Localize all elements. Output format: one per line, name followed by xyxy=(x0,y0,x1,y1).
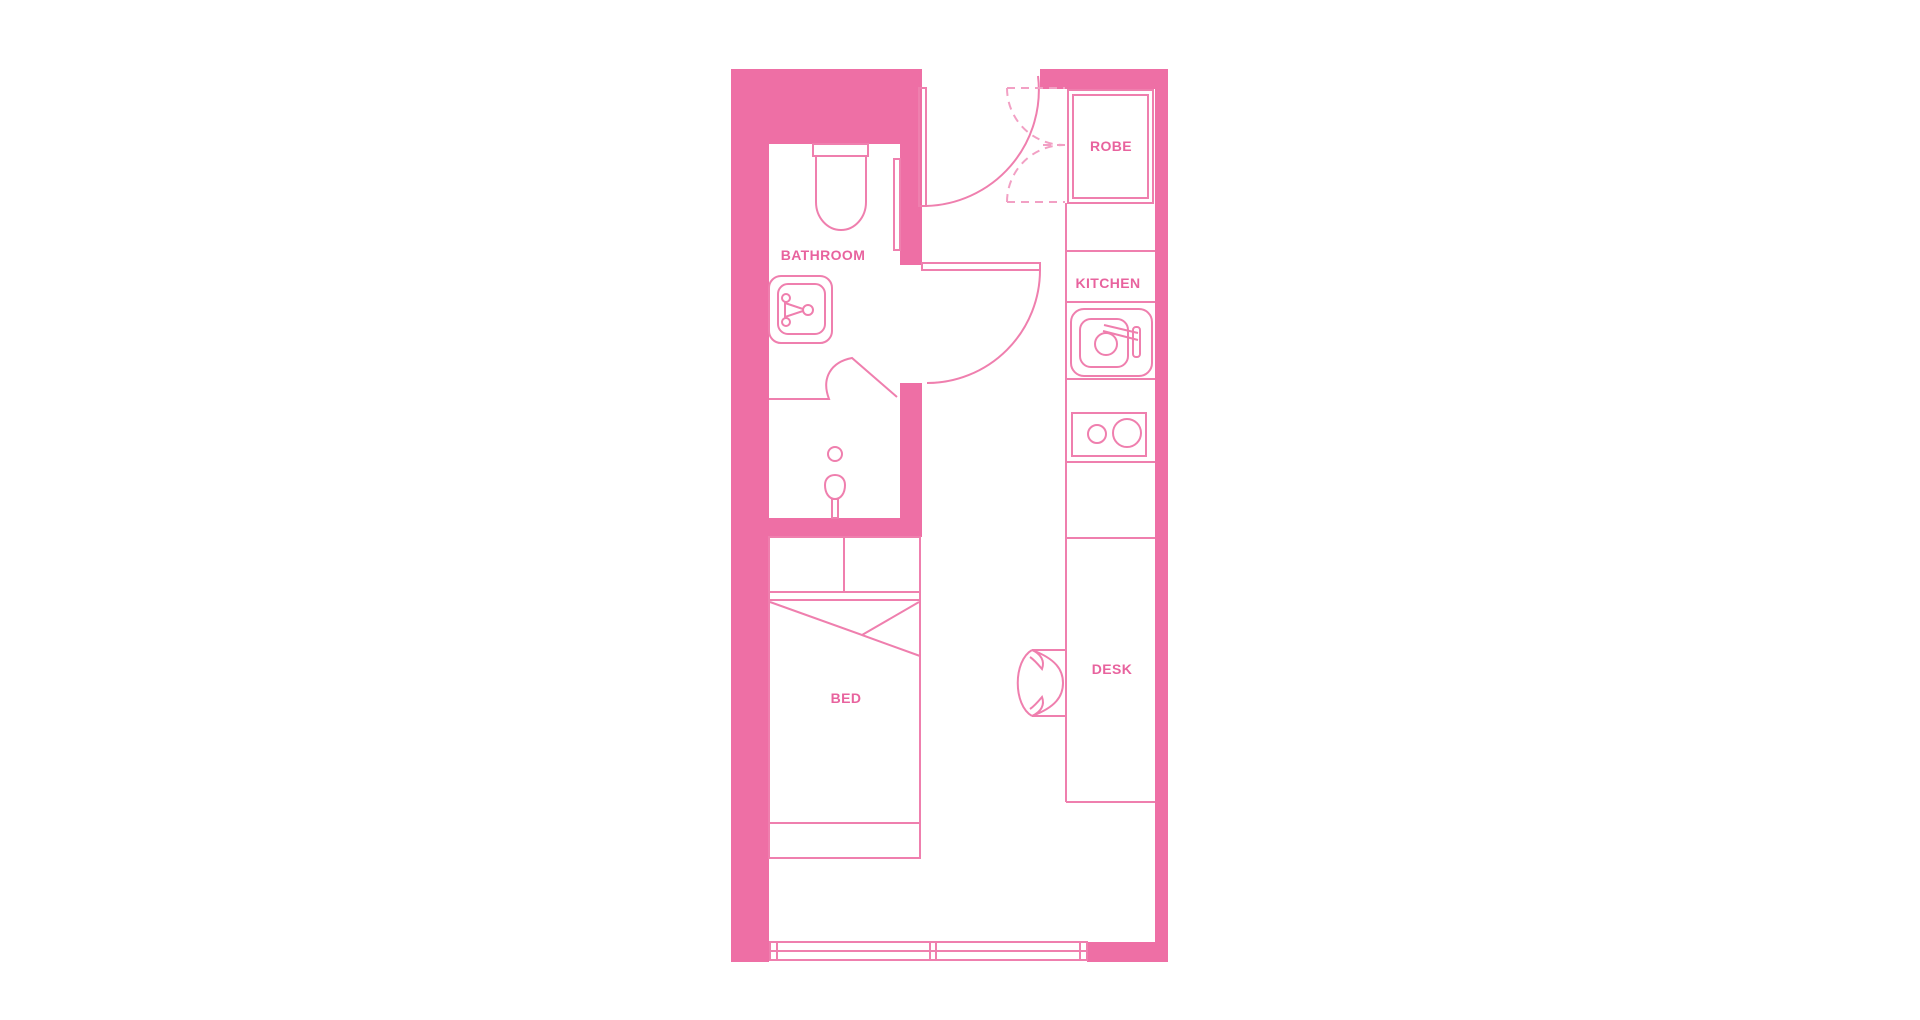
wall-bottom-right xyxy=(1087,942,1168,962)
shower-stem xyxy=(832,499,838,518)
shower-icon xyxy=(825,447,845,518)
robe-door-bottom-arc xyxy=(1007,145,1064,202)
sink-bowl xyxy=(1080,319,1128,367)
wall-top-left-block xyxy=(731,69,922,144)
window-icon xyxy=(770,942,1087,960)
bathroom-wall-panel xyxy=(894,159,900,250)
bathroom-door-swing-arc xyxy=(927,270,1040,383)
kitchen-sink-icon xyxy=(1071,309,1152,376)
basin-tap-tip xyxy=(803,305,813,315)
wall-bathroom-lower xyxy=(900,383,922,518)
room-label-desk: DESK xyxy=(1092,661,1133,677)
chair-connectors xyxy=(1032,650,1066,716)
bathroom-door-leaf xyxy=(922,263,1040,270)
wall-top-right xyxy=(1040,69,1168,89)
bathroom-door-icon xyxy=(922,263,1040,383)
bed-blanket-fold xyxy=(770,602,920,656)
shower-head xyxy=(828,447,842,461)
basin-icon xyxy=(769,276,832,343)
sink-drain xyxy=(1095,333,1117,355)
basin-tap-handle-bottom xyxy=(782,318,790,326)
toilet-bowl xyxy=(816,156,866,230)
room-label-bathroom: BATHROOM xyxy=(781,247,866,263)
chair-seat xyxy=(1032,650,1063,716)
cooktop-burner-large xyxy=(1113,419,1141,447)
toilet-icon xyxy=(813,144,868,230)
room-label-bed: BED xyxy=(831,690,862,706)
entry-door-icon xyxy=(919,76,1039,206)
floor-plan: BATHROOM ROBE KITCHEN DESK BED xyxy=(0,0,1920,1020)
entry-door-swing-arc xyxy=(926,76,1039,206)
wall-right xyxy=(1155,69,1168,962)
wall-bathroom-bottom xyxy=(769,518,922,537)
floor-plan-canvas: BATHROOM ROBE KITCHEN DESK BED xyxy=(0,0,1920,1020)
wall-left xyxy=(731,69,769,962)
toilet-cistern xyxy=(813,144,868,156)
robe-doors-icon xyxy=(1007,88,1065,202)
cooktop-outline xyxy=(1072,413,1146,456)
room-label-robe: ROBE xyxy=(1090,138,1132,154)
basin-tap-handle-top xyxy=(782,294,790,302)
cooktop-icon xyxy=(1072,413,1146,456)
shower-mixer xyxy=(825,475,845,499)
cooktop-burner-small xyxy=(1088,425,1106,443)
bed-mattress xyxy=(769,600,920,858)
kitchen-bench xyxy=(1066,203,1155,802)
desk-chair-icon xyxy=(1018,650,1066,716)
bed-pillow-band xyxy=(769,592,920,600)
room-label-kitchen: KITCHEN xyxy=(1075,275,1140,291)
shower-screen xyxy=(769,358,897,399)
chair-back xyxy=(1018,650,1032,716)
